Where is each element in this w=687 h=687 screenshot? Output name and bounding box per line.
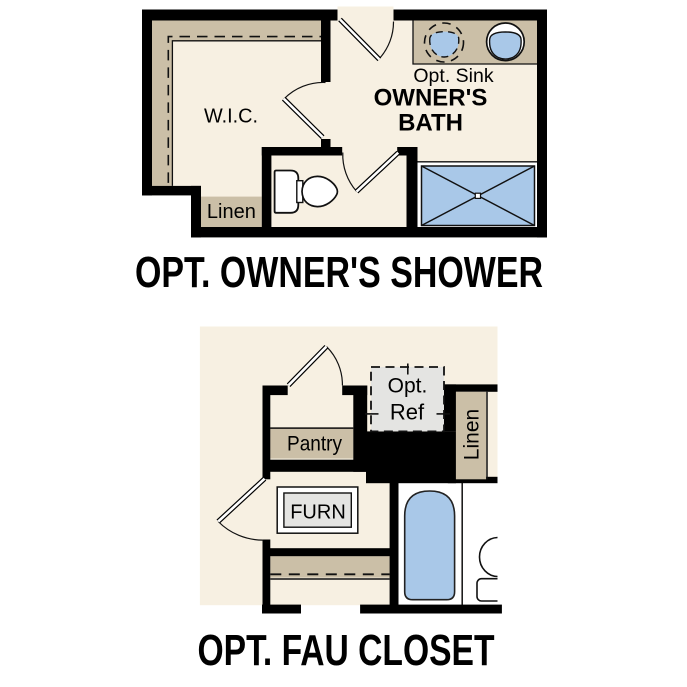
svg-text:Ref: Ref: [390, 400, 425, 425]
svg-text:OWNER'S: OWNER'S: [374, 85, 488, 112]
svg-text:Linen: Linen: [207, 201, 256, 223]
svg-text:W.I.C.: W.I.C.: [204, 106, 258, 128]
svg-text:OPT. OWNER'S SHOWER: OPT. OWNER'S SHOWER: [135, 248, 543, 297]
svg-text:Opt.: Opt.: [388, 375, 428, 398]
svg-text:OPT. FAU CLOSET: OPT. FAU CLOSET: [198, 626, 495, 675]
svg-text:BATH: BATH: [398, 110, 463, 137]
svg-text:FURN: FURN: [290, 501, 346, 523]
svg-text:Linen: Linen: [461, 409, 484, 460]
svg-text:Pantry: Pantry: [287, 433, 342, 456]
